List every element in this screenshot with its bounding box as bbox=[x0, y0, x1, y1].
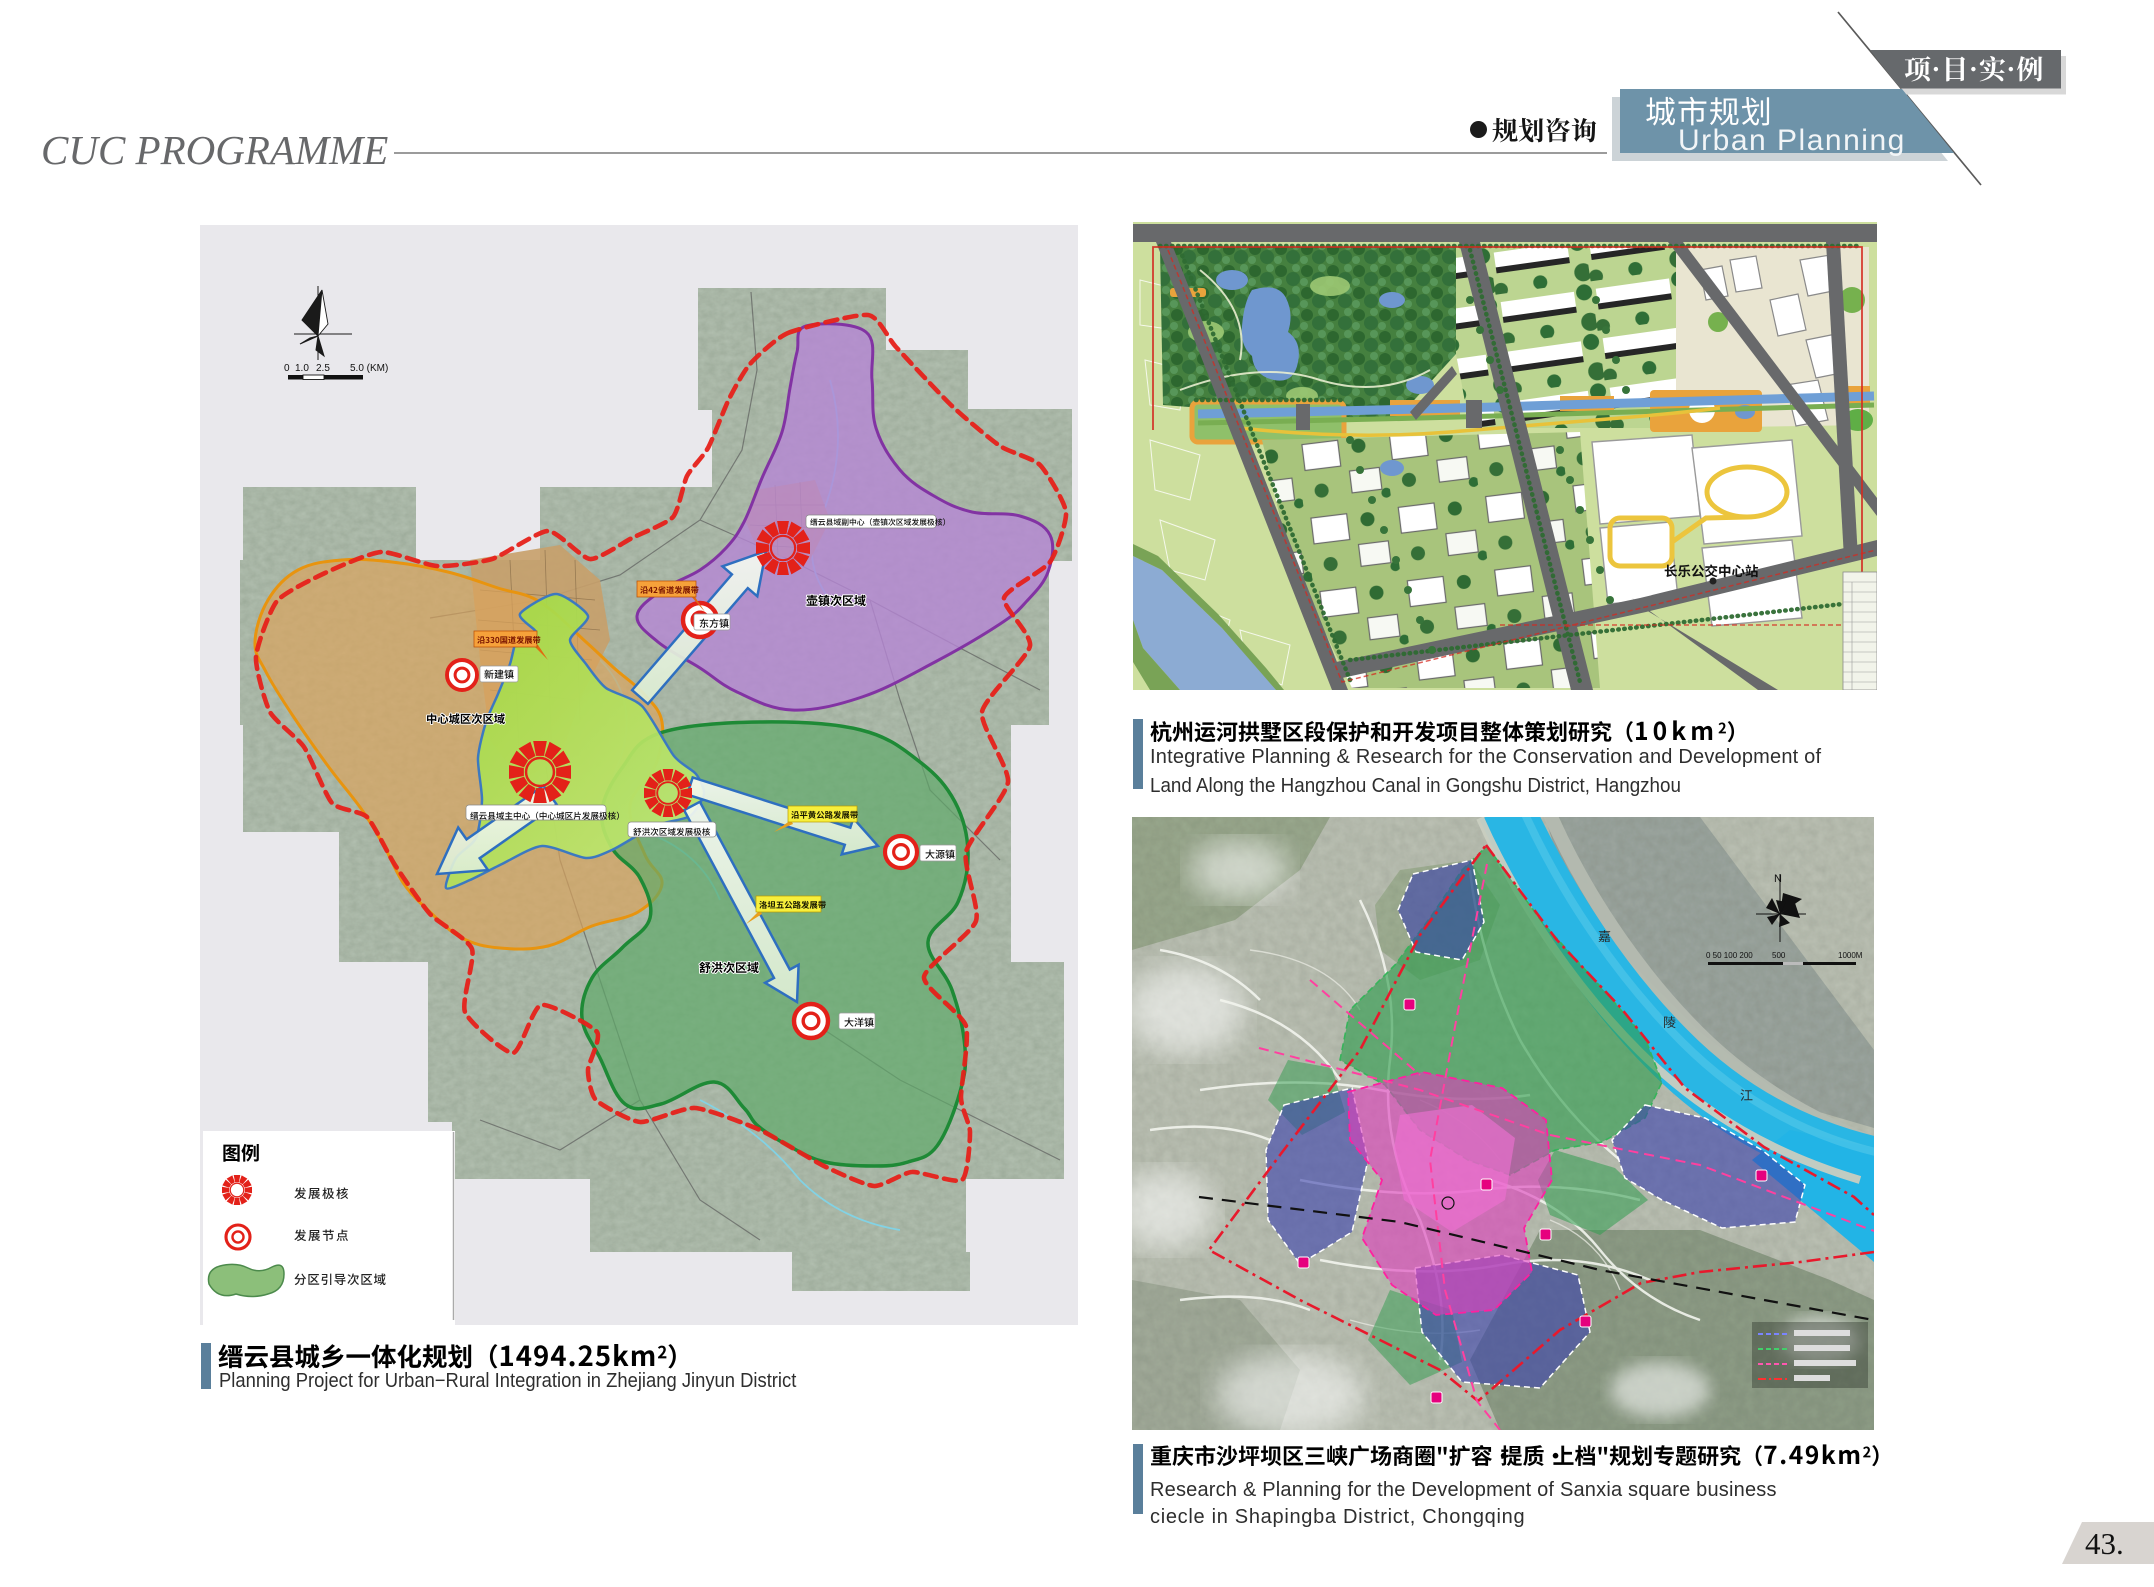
svg-text:0 50 100 200: 0 50 100 200 bbox=[1706, 951, 1753, 960]
svg-text:2.5: 2.5 bbox=[316, 363, 330, 374]
svg-text:5.0 (KM): 5.0 (KM) bbox=[350, 363, 388, 374]
svg-text:N: N bbox=[1774, 873, 1782, 885]
svg-text:0: 0 bbox=[284, 363, 290, 374]
svg-text:1000M: 1000M bbox=[1838, 951, 1863, 960]
svg-text:1.0: 1.0 bbox=[295, 363, 309, 374]
svg-text:500: 500 bbox=[1772, 951, 1786, 960]
